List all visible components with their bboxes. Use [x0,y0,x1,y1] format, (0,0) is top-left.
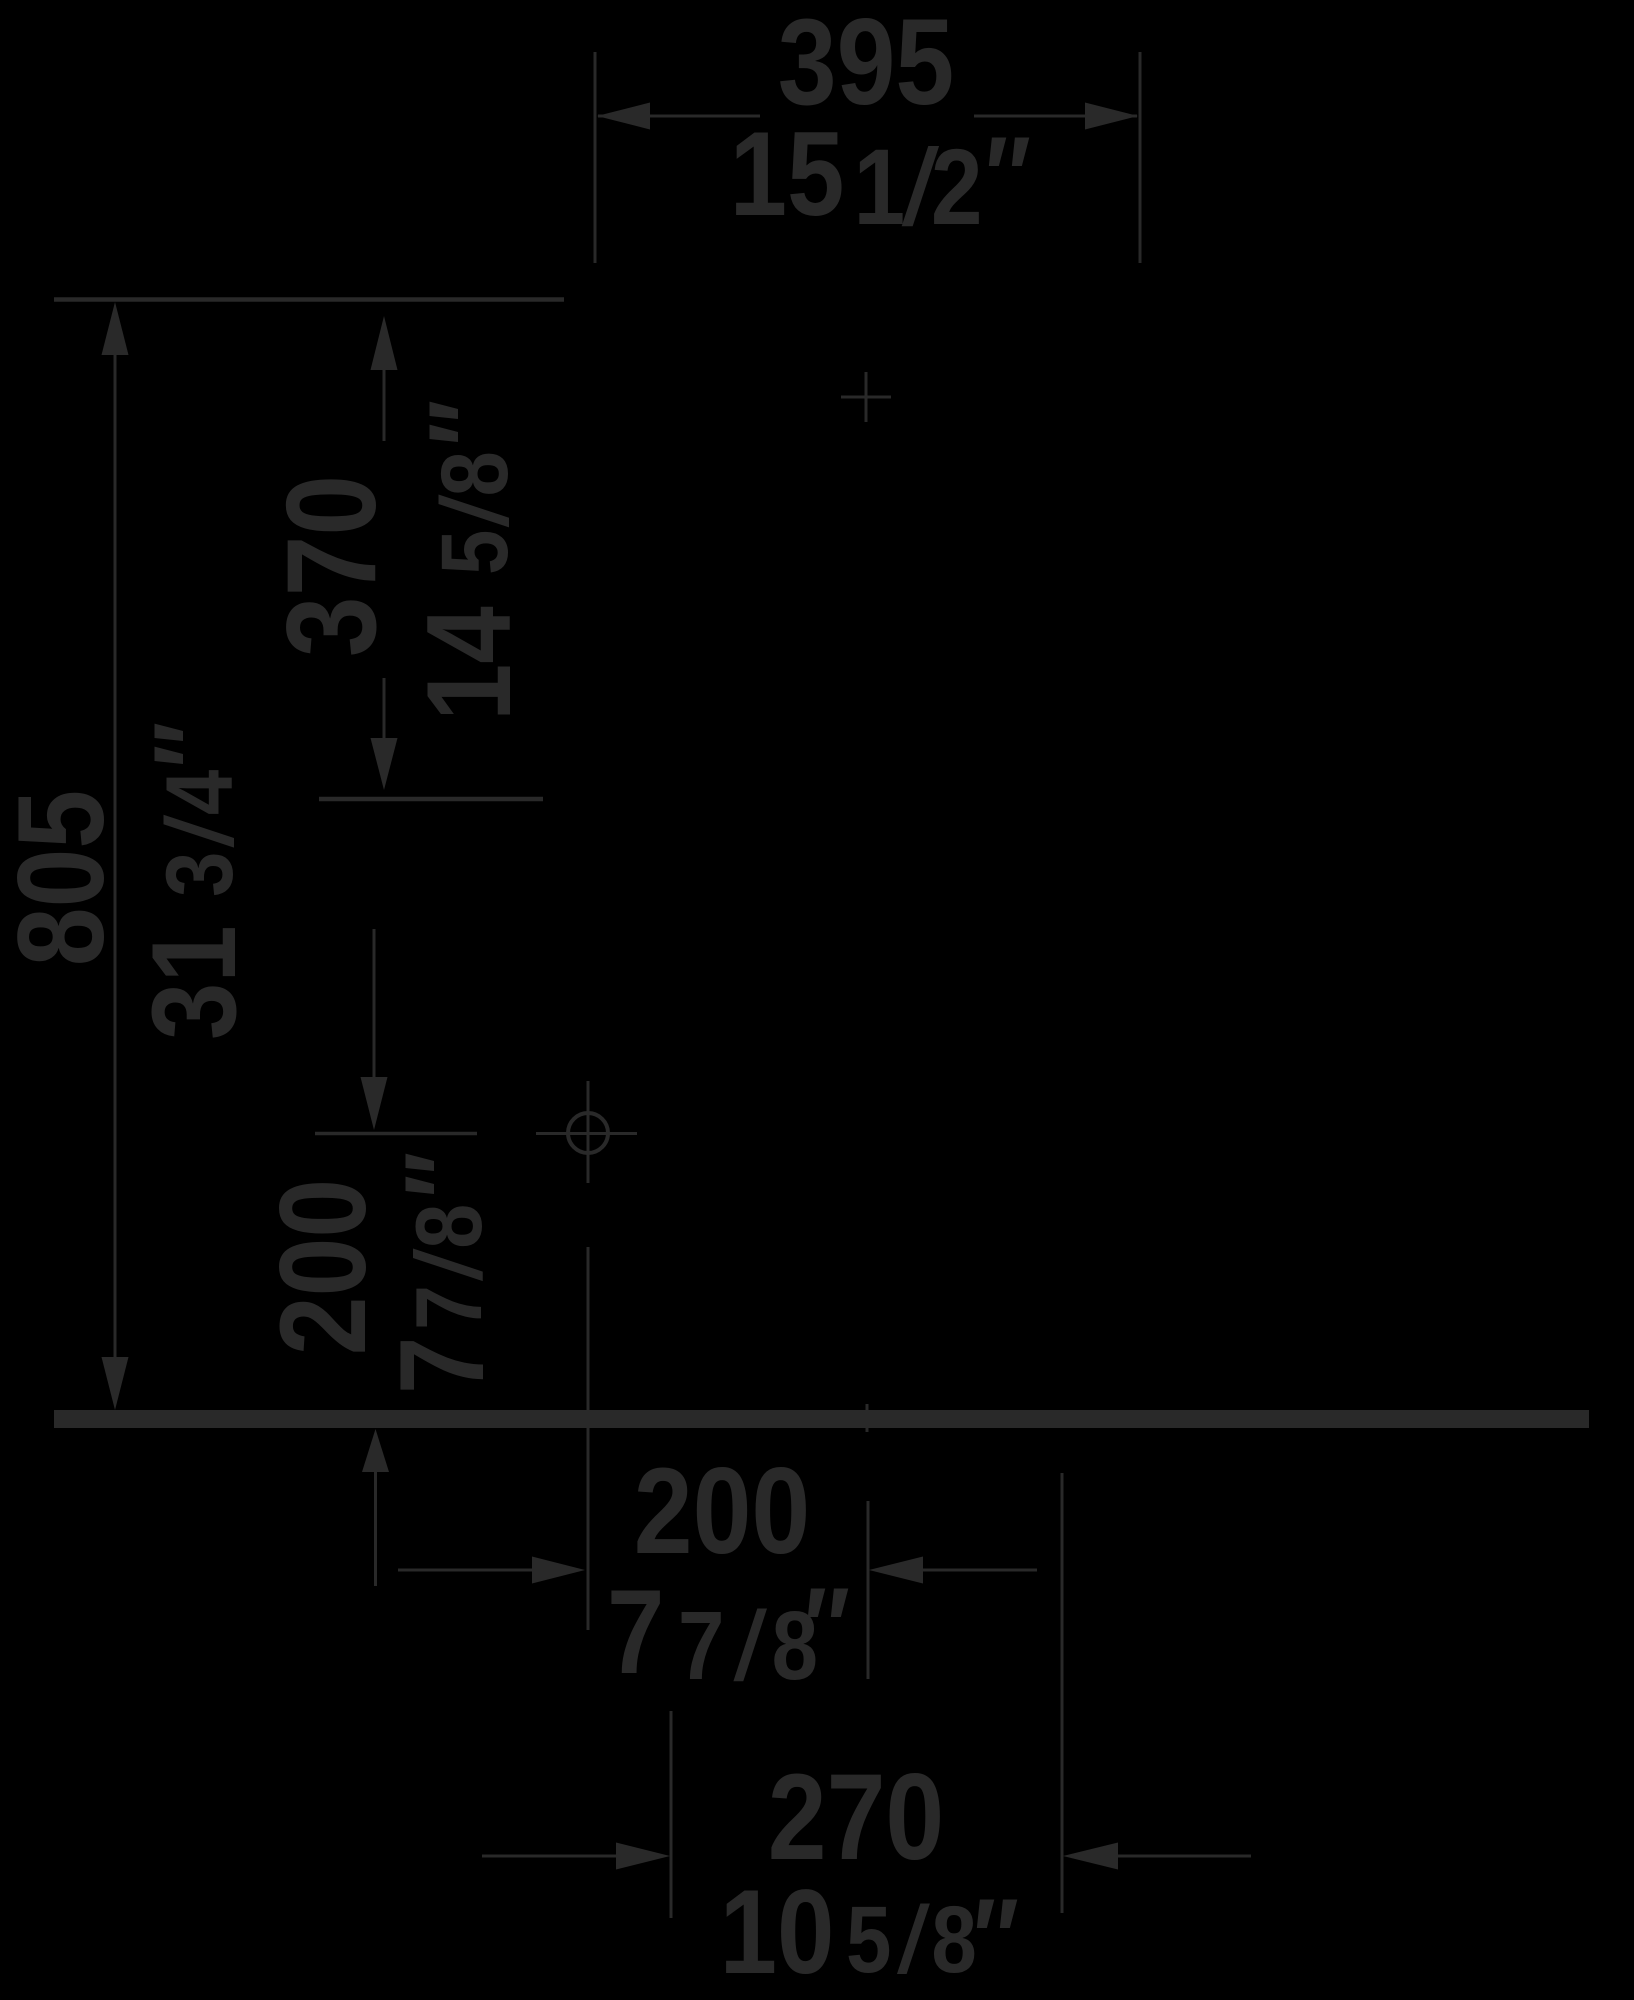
svg-text:7: 7 [375,1337,509,1394]
svg-text:10: 10 [720,1865,835,1999]
svg-text:5/8: 5/8 [421,446,527,575]
svg-text:370: 370 [261,475,403,657]
svg-text:1/2: 1/2 [853,127,982,247]
svg-text:5/8: 5/8 [846,1886,985,1992]
svg-text:15: 15 [730,107,845,241]
svg-text:14: 14 [402,606,536,721]
svg-text:″: ″ [382,1152,507,1198]
svg-text:″: ″ [804,1565,850,1690]
svg-text:3/4: 3/4 [146,763,252,897]
svg-text:″: ″ [131,722,256,768]
svg-text:200: 200 [255,1179,392,1355]
svg-text:″: ″ [985,114,1031,239]
svg-text:″: ″ [406,400,531,446]
svg-text:31: 31 [127,925,261,1040]
svg-text:7/8: 7/8 [396,1197,501,1330]
svg-text:7: 7 [607,1565,664,1699]
svg-text:805: 805 [0,790,130,966]
svg-text:200: 200 [634,1443,810,1580]
svg-text:″: ″ [973,1876,1019,2000]
